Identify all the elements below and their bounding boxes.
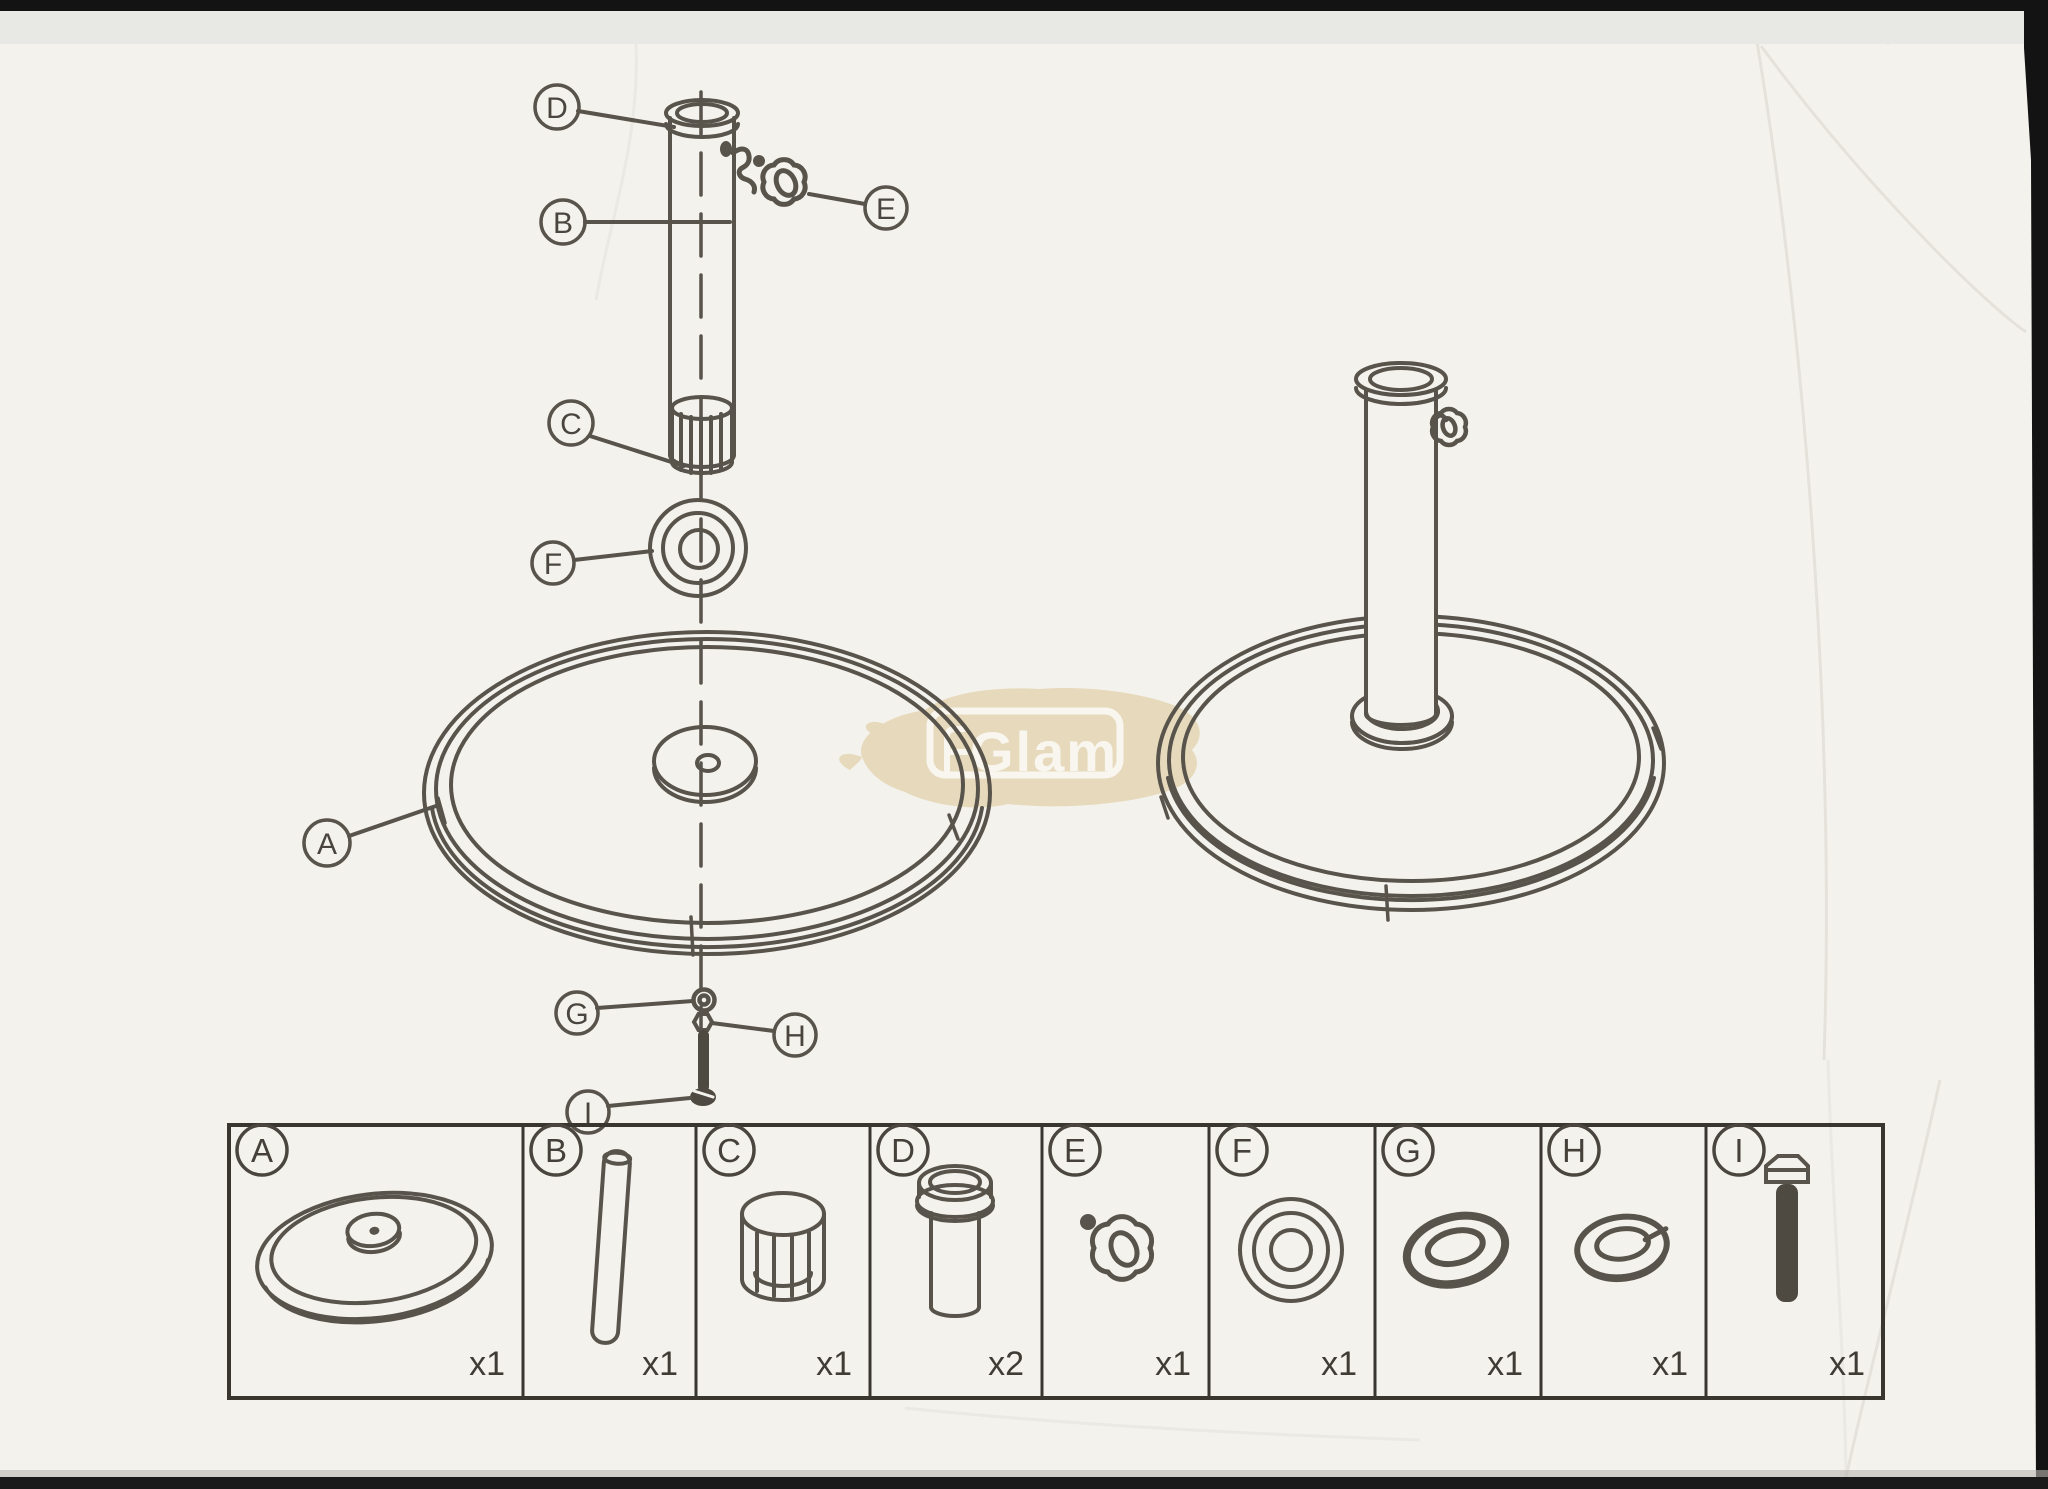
- callout-letter-g: G: [565, 998, 588, 1031]
- part-letter-d: D: [891, 1132, 915, 1169]
- rim-tick-bottom: [691, 917, 693, 955]
- callout-letter-a: A: [317, 828, 337, 861]
- callout-letter-d: D: [546, 92, 568, 125]
- tube-knob-hole: [720, 141, 732, 157]
- callout-letter-b: B: [553, 207, 573, 240]
- part-qty-e: x1: [1155, 1345, 1191, 1383]
- part-qty-f: x1: [1321, 1345, 1357, 1383]
- callout-letter-f: F: [544, 548, 562, 581]
- callout-letter-c: C: [560, 408, 582, 441]
- rim-tick-bottom: [1386, 886, 1388, 920]
- part-qty-c: x1: [816, 1345, 852, 1383]
- part-qty-b: x1: [642, 1345, 678, 1383]
- part-letter-i: I: [1734, 1132, 1743, 1169]
- callout-letter-e: E: [876, 193, 896, 226]
- scanned-instruction-sheet: Glam: [0, 0, 2048, 1489]
- part-letter-e: E: [1064, 1132, 1086, 1169]
- watermark-text: Glam: [970, 720, 1118, 783]
- part-qty-d: x2: [988, 1345, 1024, 1383]
- part-letter-a: A: [251, 1132, 273, 1169]
- part-letter-f: F: [1232, 1132, 1252, 1169]
- part-qty-a: x1: [469, 1345, 505, 1383]
- part-qty-i: x1: [1829, 1345, 1865, 1383]
- part-qty-h: x1: [1652, 1345, 1688, 1383]
- callout-letter-h: H: [784, 1020, 806, 1053]
- part-letter-g: G: [1395, 1132, 1421, 1169]
- part-letter-c: C: [717, 1132, 741, 1169]
- part-qty-g: x1: [1487, 1345, 1523, 1383]
- part-letter-b: B: [545, 1132, 567, 1169]
- scan-band-top: [0, 11, 2048, 44]
- part-letter-h: H: [1562, 1132, 1586, 1169]
- scan-band-bottom: [0, 1470, 2048, 1478]
- scan-edge-bottom: [0, 1477, 2048, 1489]
- scan-edge-top: [0, 0, 2048, 11]
